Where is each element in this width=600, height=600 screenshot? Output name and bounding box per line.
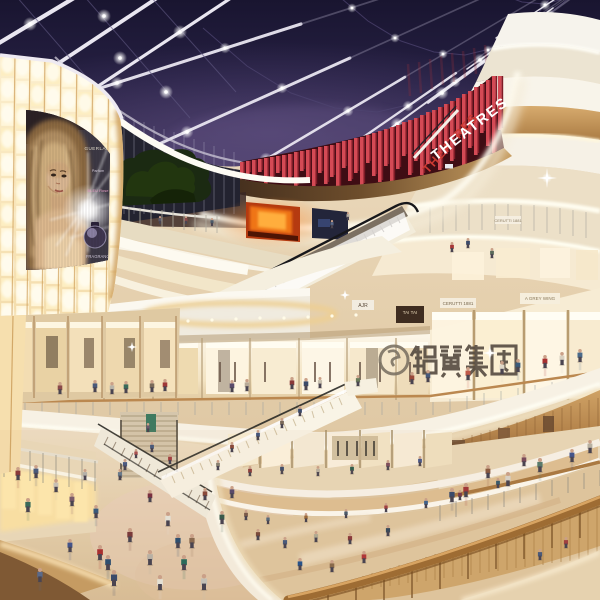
svg-text:AJR: AJR bbox=[358, 303, 368, 309]
svg-text:TAI TAI: TAI TAI bbox=[403, 310, 418, 315]
svg-text:BLEU Rose: BLEU Rose bbox=[88, 188, 110, 193]
svg-text:CERUTTI 1881: CERUTTI 1881 bbox=[494, 218, 522, 223]
svg-text:A GREY WING: A GREY WING bbox=[525, 296, 556, 301]
svg-text:CERUTTI 1881: CERUTTI 1881 bbox=[443, 301, 474, 306]
